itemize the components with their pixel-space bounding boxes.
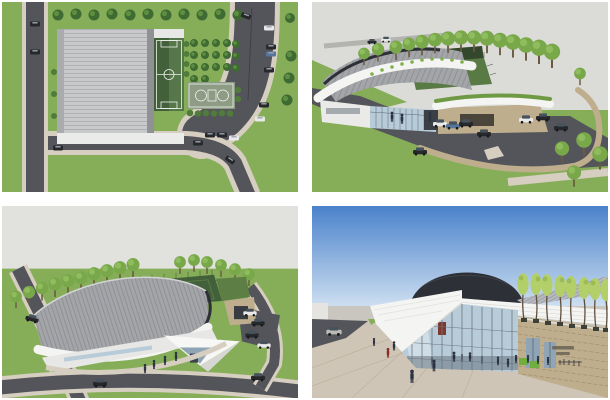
basketball-court-plan [187,82,235,109]
car [266,45,276,50]
football-pitch-plan [154,38,184,111]
site-plan-render [2,2,298,192]
car [53,146,63,151]
aerial-front-render [312,2,608,192]
panel-entrance-view [312,206,608,398]
car [30,22,40,27]
car [264,26,274,31]
car [266,52,276,57]
green-sign-board [519,358,528,365]
panel-site-plan [2,2,298,192]
panel-aerial-front [312,2,608,192]
building-apron [57,133,184,144]
aerial-rear-render [2,206,298,398]
car [259,103,269,108]
car [255,117,265,122]
car [30,50,40,55]
render-collage [0,0,610,400]
car [264,68,274,73]
west-windows [326,108,360,114]
car [205,133,215,138]
car [217,133,227,138]
car [193,141,203,146]
panel-aerial-rear [2,206,298,398]
entrance-view-render [312,206,608,398]
green-roof-plantroom [216,277,250,301]
car [229,136,239,141]
distant-wall [312,303,328,321]
